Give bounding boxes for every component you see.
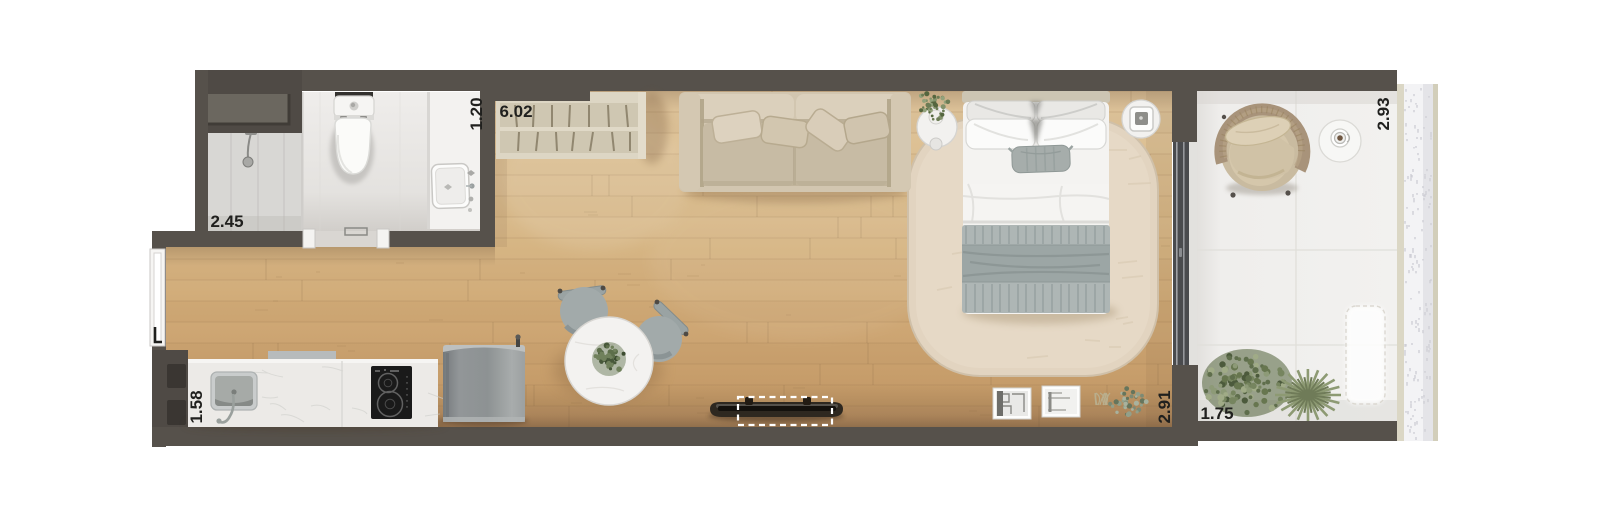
svg-text:2.45: 2.45 bbox=[210, 212, 243, 231]
svg-text:2.93: 2.93 bbox=[1374, 97, 1393, 130]
svg-text:2.91: 2.91 bbox=[1155, 390, 1174, 423]
svg-text:1.58: 1.58 bbox=[187, 390, 206, 423]
svg-text:6.02: 6.02 bbox=[499, 102, 532, 121]
svg-text:1.75: 1.75 bbox=[1200, 404, 1233, 423]
svg-text:1.20: 1.20 bbox=[467, 97, 486, 130]
